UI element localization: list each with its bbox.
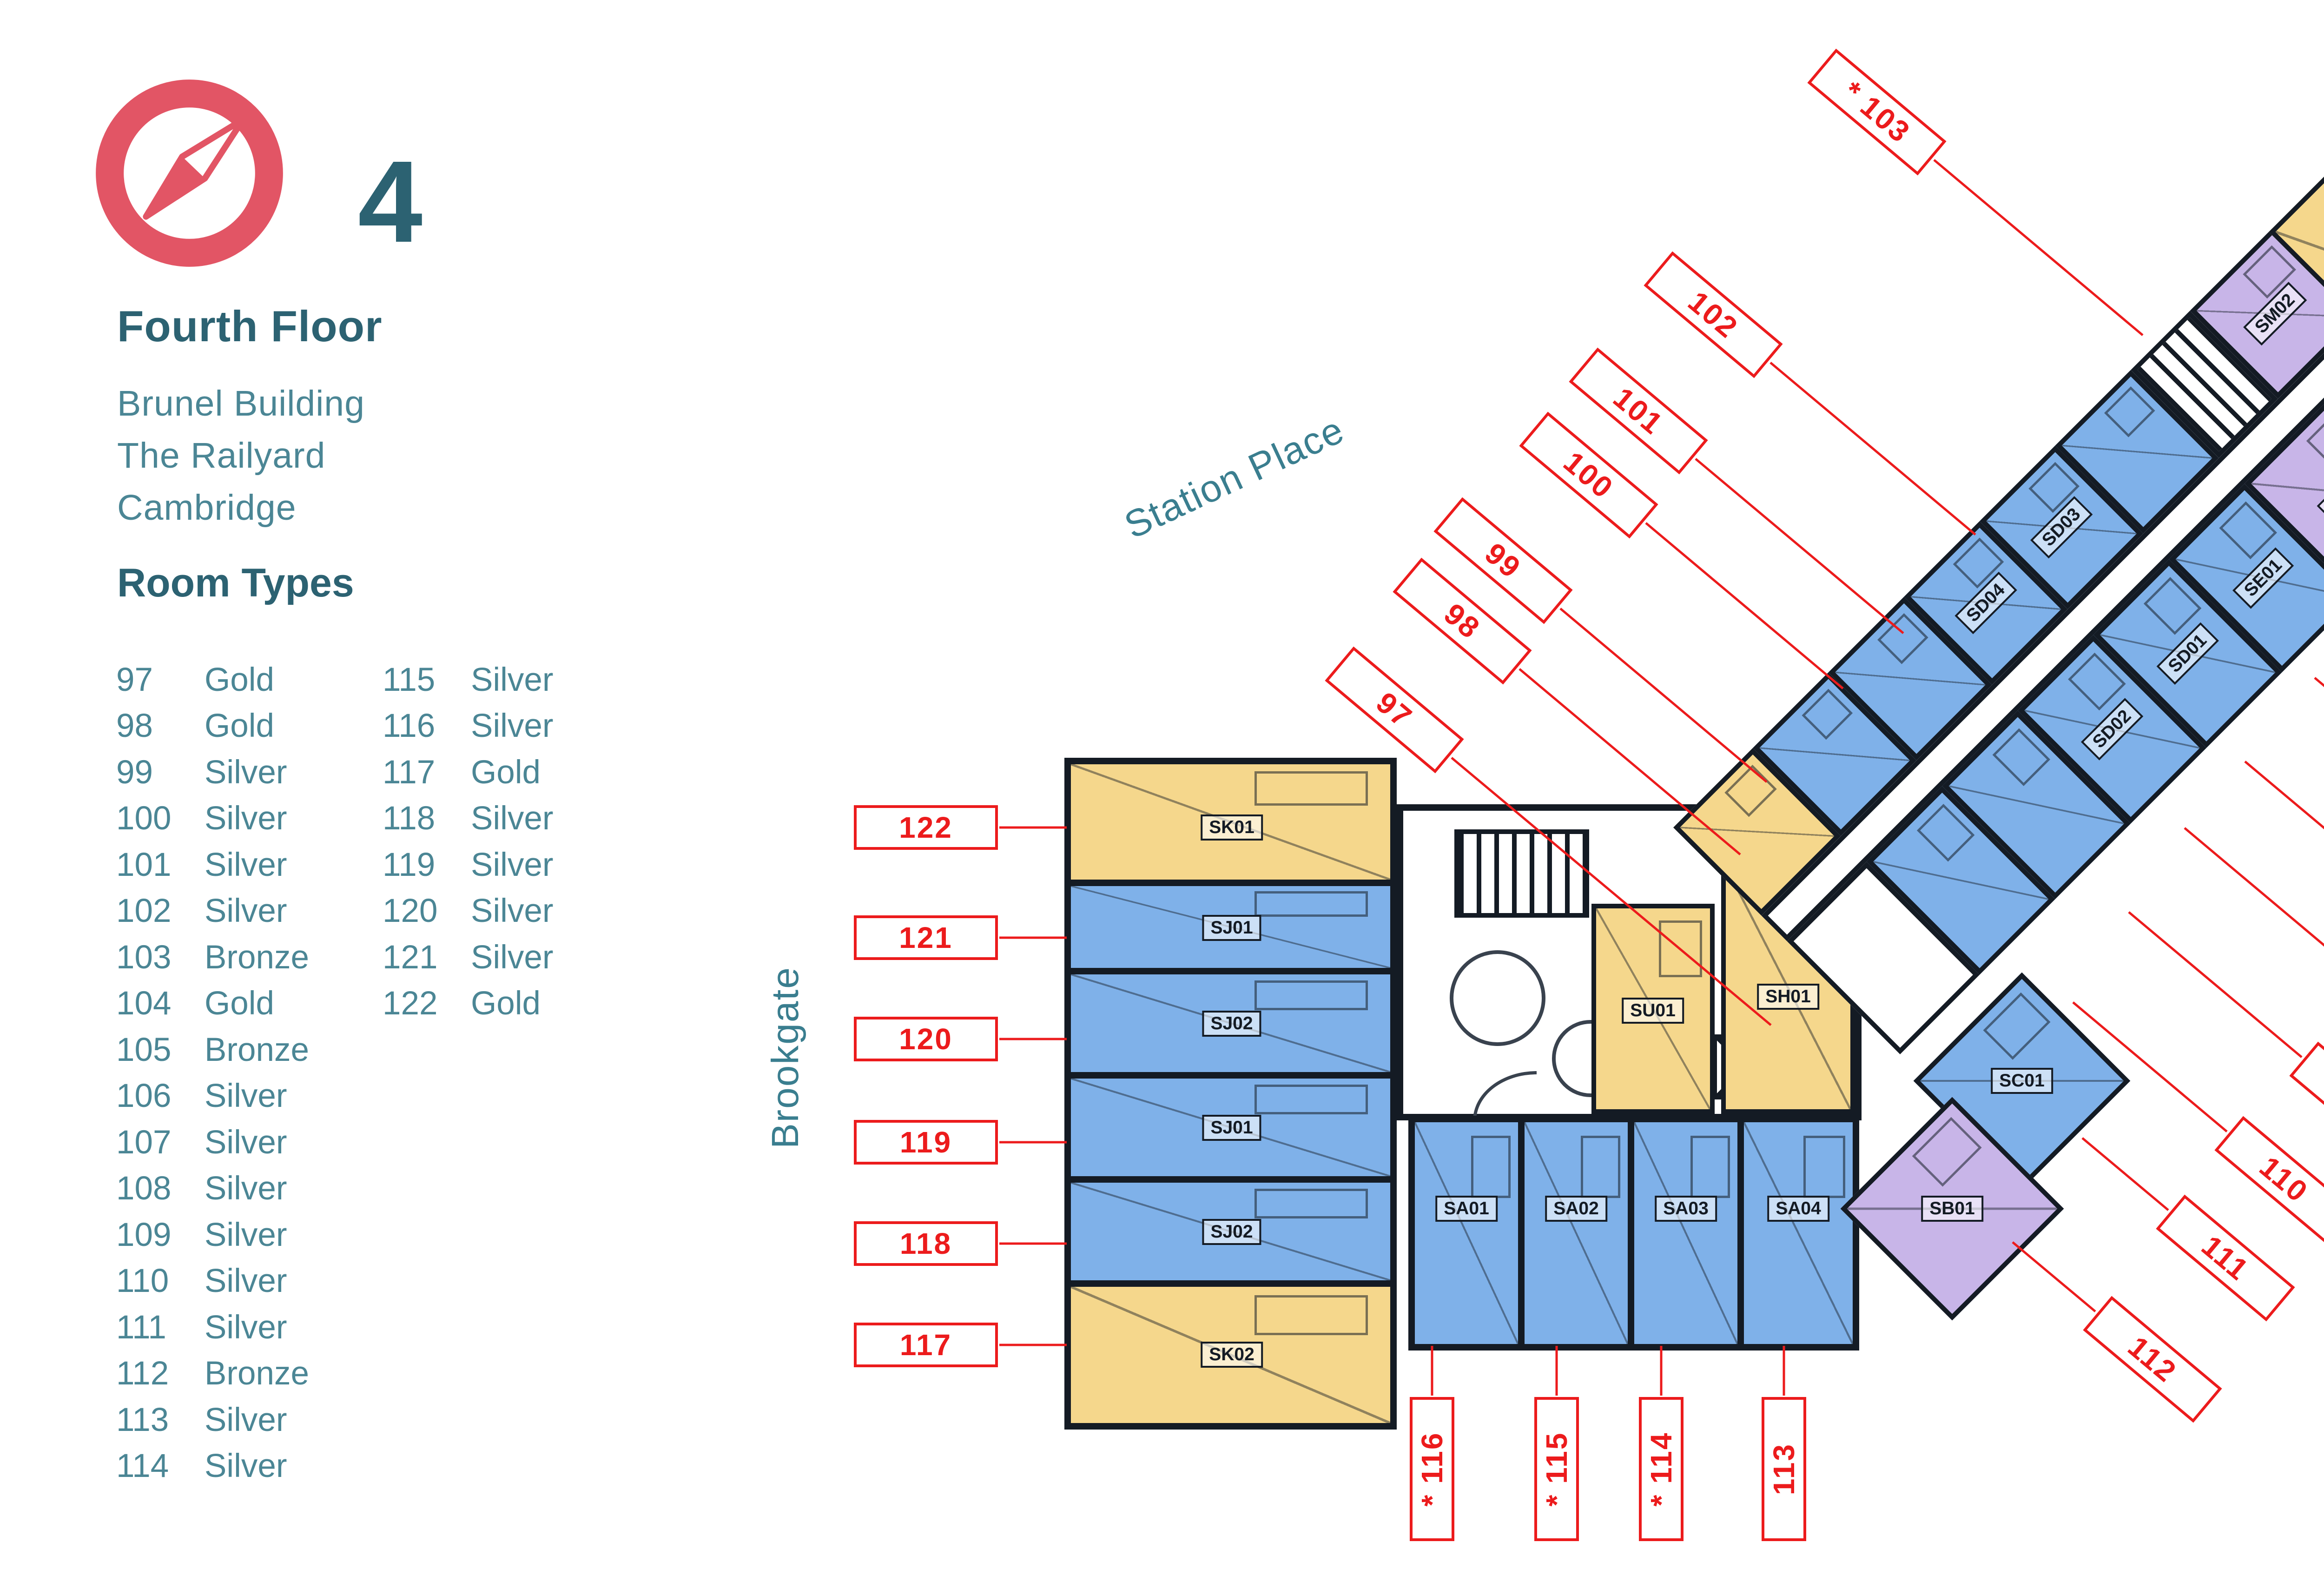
callout-120: 120 <box>854 1017 998 1061</box>
callout-leader-lines <box>0 0 2324 1569</box>
callout-116: * 116 <box>1410 1397 1454 1541</box>
callout-117: 117 <box>854 1323 998 1367</box>
callout-113: 113 <box>1762 1397 1806 1541</box>
callout-119: 119 <box>854 1120 998 1165</box>
callout-114: * 114 <box>1639 1397 1684 1541</box>
callout-122: 122 <box>854 805 998 850</box>
floorplan-page: 4 Fourth Floor Brunel Building The Raily… <box>0 0 2324 1569</box>
callout-118: 118 <box>854 1221 998 1266</box>
callout-115: * 115 <box>1534 1397 1579 1541</box>
callout-121: 121 <box>854 915 998 960</box>
